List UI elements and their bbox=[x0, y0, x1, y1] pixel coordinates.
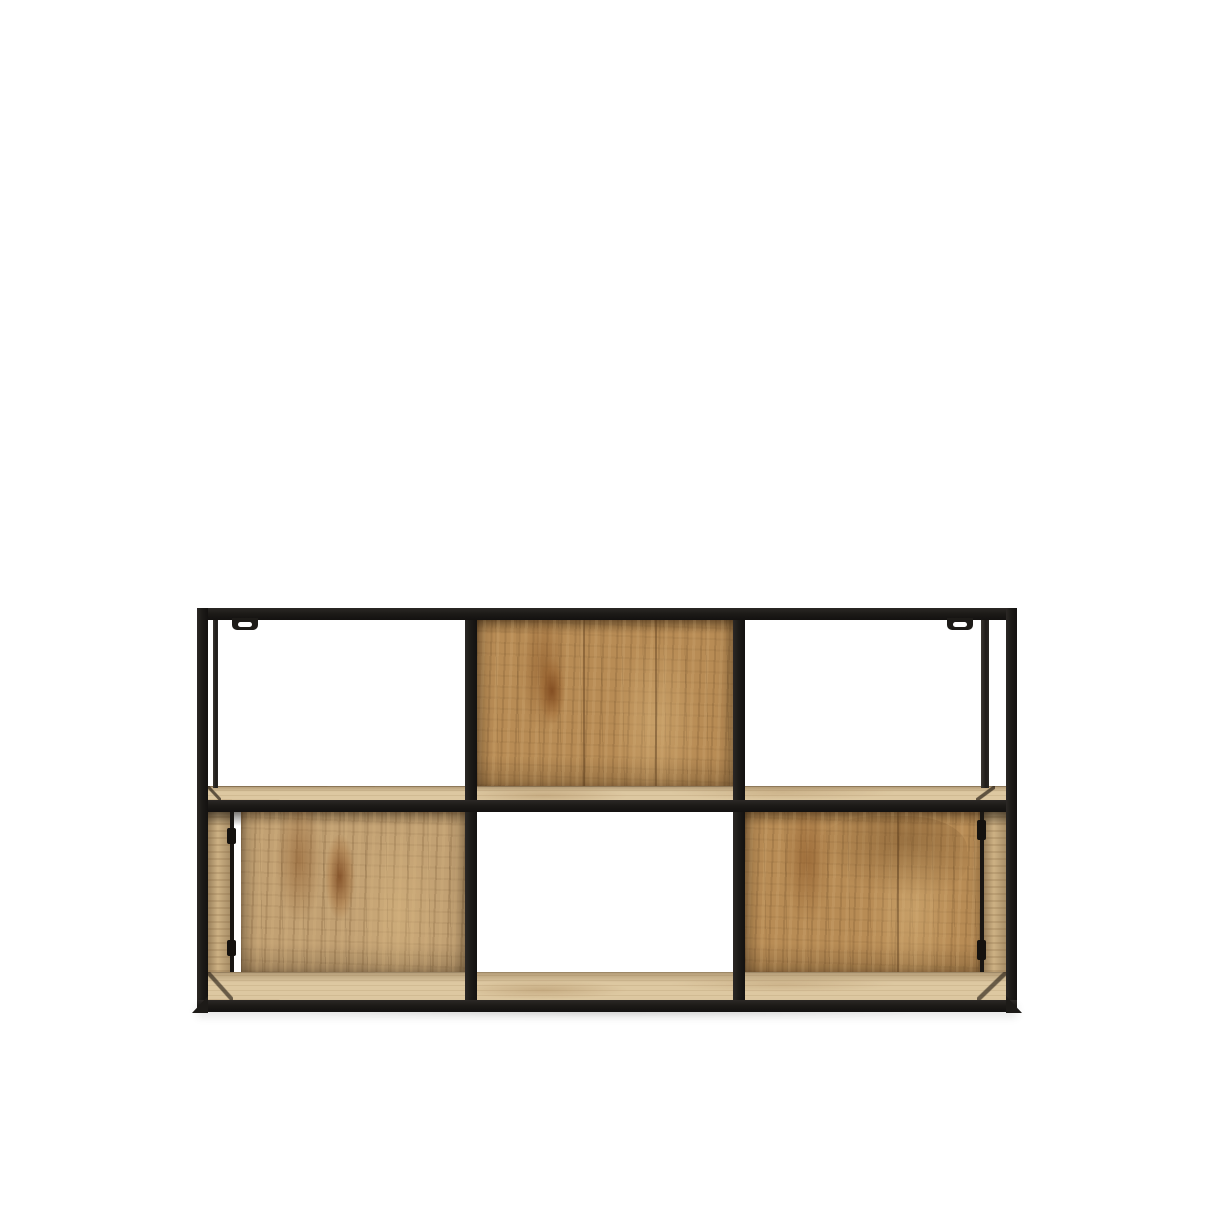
bottom-left-box-hinge-bottom bbox=[227, 940, 236, 956]
frame-bottom-rail bbox=[197, 1000, 1017, 1012]
bottom-right-box-hinge-top bbox=[977, 820, 986, 840]
wall-shelf-product bbox=[197, 608, 1017, 1012]
frame-top-rail bbox=[197, 608, 1017, 620]
bottom-right-wood-shading bbox=[817, 816, 967, 896]
mid-shelf-left-corner-seam bbox=[208, 786, 221, 800]
mount-slot-right bbox=[953, 622, 967, 627]
bottom-left-box-hinge-top bbox=[227, 828, 236, 844]
frame-left-upright bbox=[197, 608, 208, 1012]
bottom-right-plank-seam bbox=[897, 812, 899, 972]
photo-canvas bbox=[0, 0, 1214, 1214]
frame-middle-rail bbox=[208, 800, 1006, 812]
base-wood-surface bbox=[208, 972, 1006, 1001]
top-middle-plank-seam-1 bbox=[583, 620, 585, 786]
frame-right-upright bbox=[1006, 608, 1017, 1012]
top-right-cell-rear-post bbox=[981, 620, 989, 788]
top-left-cell-rear-post bbox=[213, 620, 218, 788]
wall-mount-tab-right bbox=[947, 618, 973, 630]
mid-shelf-right-corner-seam bbox=[976, 786, 995, 800]
bottom-left-wood-knot bbox=[325, 834, 355, 920]
top-middle-back-panel bbox=[477, 620, 733, 786]
bottom-right-box-hinge-bottom bbox=[977, 940, 986, 960]
base-left-corner-seam bbox=[208, 972, 233, 1000]
wall-mount-tab-left bbox=[232, 618, 258, 630]
mid-shelf-wood-surface bbox=[208, 786, 1006, 801]
bottom-right-box-side-panel bbox=[984, 812, 1006, 972]
base-right-corner-seam bbox=[977, 972, 1006, 1000]
top-middle-plank-seam-2 bbox=[655, 620, 657, 786]
mount-slot-left bbox=[238, 622, 252, 627]
top-middle-wood-knot bbox=[539, 658, 565, 724]
